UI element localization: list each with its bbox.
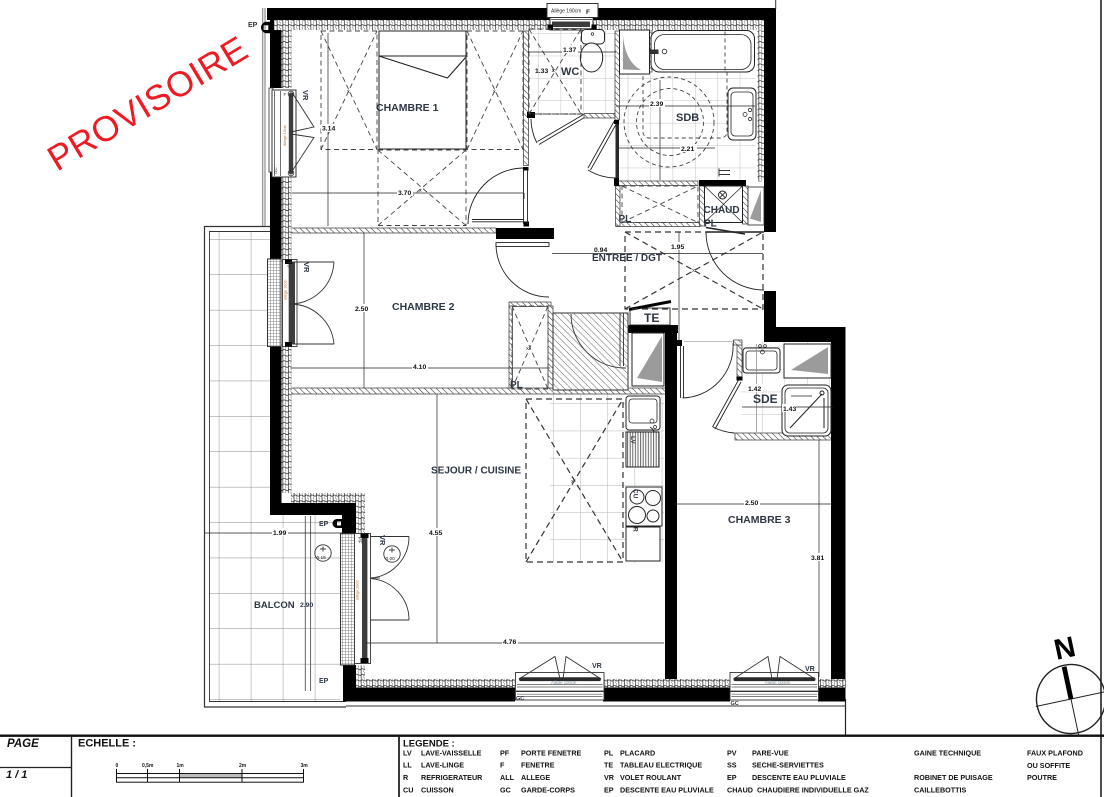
svg-text:PLACARD: PLACARD bbox=[620, 749, 655, 758]
svg-text:F: F bbox=[500, 761, 505, 770]
svg-text:GC: GC bbox=[516, 696, 524, 702]
svg-text:4.55: 4.55 bbox=[429, 530, 442, 537]
svg-text:4.76: 4.76 bbox=[503, 639, 516, 646]
svg-text:LL: LL bbox=[403, 761, 412, 770]
svg-text:x: x bbox=[692, 268, 695, 274]
svg-text:DESCENTE EAU PLUVIALE: DESCENTE EAU PLUVIALE bbox=[620, 786, 714, 795]
svg-text:PF: PF bbox=[356, 537, 362, 543]
svg-text:PARE-VUE: PARE-VUE bbox=[752, 749, 789, 758]
svg-text:VR: VR bbox=[805, 666, 815, 673]
svg-text:TE: TE bbox=[644, 311, 659, 325]
svg-text:SECHE-SERVIETTES: SECHE-SERVIETTES bbox=[752, 761, 824, 770]
svg-text:2.50: 2.50 bbox=[355, 306, 368, 313]
svg-text:EP: EP bbox=[604, 786, 614, 795]
svg-text:PL: PL bbox=[704, 219, 717, 230]
svg-text:2m: 2m bbox=[239, 763, 247, 769]
svg-text:CAILLEBOTTIS: CAILLEBOTTIS bbox=[914, 786, 967, 795]
svg-text:VR: VR bbox=[378, 535, 387, 546]
svg-text:ROBINET DE PUISAGE: ROBINET DE PUISAGE bbox=[914, 773, 993, 782]
svg-text:REFRIGERATEUR: REFRIGERATEUR bbox=[421, 773, 483, 782]
svg-text:F: F bbox=[284, 92, 287, 97]
svg-text:PF: PF bbox=[500, 749, 510, 758]
svg-text:x: x bbox=[571, 479, 574, 485]
svg-text:POUTRE: POUTRE bbox=[1027, 773, 1057, 782]
svg-text:x: x bbox=[493, 89, 496, 95]
svg-text:1m: 1m bbox=[177, 763, 185, 769]
svg-text:4.10: 4.10 bbox=[413, 364, 426, 371]
svg-text:Allège 190cm: Allège 190cm bbox=[551, 9, 581, 15]
svg-text:3.81: 3.81 bbox=[811, 555, 824, 562]
svg-text:0: 0 bbox=[116, 763, 119, 769]
svg-text:GC: GC bbox=[731, 701, 739, 707]
svg-text:PL: PL bbox=[604, 749, 614, 758]
svg-text:SS: SS bbox=[727, 761, 737, 770]
svg-text:GC: GC bbox=[273, 166, 278, 174]
svg-text:CUISSON: CUISSON bbox=[421, 786, 454, 795]
svg-text:allège 10cm: allège 10cm bbox=[284, 280, 288, 300]
svg-text:TABLEAU ELECTRIQUE: TABLEAU ELECTRIQUE bbox=[620, 761, 702, 770]
svg-text:1.43: 1.43 bbox=[783, 406, 796, 413]
svg-text:LAVE-VAISSELLE: LAVE-VAISSELLE bbox=[421, 749, 482, 758]
svg-text:x: x bbox=[347, 89, 350, 95]
svg-text:F: F bbox=[586, 9, 590, 16]
svg-text:1.37: 1.37 bbox=[563, 47, 576, 54]
svg-text:2.39: 2.39 bbox=[650, 101, 663, 108]
svg-text:CHAMBRE 3: CHAMBRE 3 bbox=[728, 514, 791, 526]
svg-text:TE: TE bbox=[604, 761, 613, 770]
svg-text:GAINE TECHNIQUE: GAINE TECHNIQUE bbox=[914, 749, 981, 758]
svg-text:VR: VR bbox=[302, 262, 311, 273]
svg-text:GARDE-CORPS: GARDE-CORPS bbox=[521, 786, 575, 795]
svg-text:PL: PL bbox=[510, 380, 523, 391]
svg-text:allège 10cm: allège 10cm bbox=[356, 580, 360, 600]
svg-text:Allège 100cm: Allège 100cm bbox=[765, 680, 791, 685]
svg-text:PV: PV bbox=[727, 749, 737, 758]
svg-text:LV: LV bbox=[403, 749, 412, 758]
svg-text:CHAUD: CHAUD bbox=[704, 205, 740, 216]
svg-text:1.33: 1.33 bbox=[535, 68, 548, 75]
svg-text:VR: VR bbox=[604, 773, 615, 782]
svg-text:1.99: 1.99 bbox=[273, 530, 286, 537]
svg-text:EP: EP bbox=[727, 773, 737, 782]
svg-text:CHAMBRE 1: CHAMBRE 1 bbox=[376, 102, 439, 114]
svg-text:3.14: 3.14 bbox=[322, 126, 335, 133]
svg-text:EP: EP bbox=[248, 22, 258, 29]
svg-text:LV: LV bbox=[629, 436, 636, 444]
svg-text:R: R bbox=[403, 773, 409, 782]
svg-text:0,5m: 0,5m bbox=[142, 763, 154, 769]
svg-text:3.70: 3.70 bbox=[398, 190, 411, 197]
svg-text:0.00: 0.00 bbox=[386, 556, 396, 562]
svg-text:Allège 10cm: Allège 10cm bbox=[283, 125, 287, 146]
svg-text:x: x bbox=[552, 68, 555, 74]
svg-text:GC: GC bbox=[500, 786, 511, 795]
svg-text:SEJOUR / CUISINE: SEJOUR / CUISINE bbox=[431, 466, 521, 477]
svg-text:PAGE: PAGE bbox=[7, 738, 39, 750]
svg-text:VR: VR bbox=[301, 90, 310, 101]
svg-text:BALCON: BALCON bbox=[254, 600, 295, 611]
svg-text:1.95: 1.95 bbox=[671, 244, 684, 251]
svg-text:3m: 3m bbox=[301, 763, 309, 769]
svg-text:VR: VR bbox=[592, 663, 602, 670]
svg-text:CU: CU bbox=[403, 786, 413, 795]
svg-text:ENTREE / DGT: ENTREE / DGT bbox=[592, 253, 662, 264]
svg-text:OU SOFFITE: OU SOFFITE bbox=[1027, 761, 1070, 770]
svg-text:FAUX PLAFOND: FAUX PLAFOND bbox=[1027, 749, 1083, 758]
svg-text:VOLET ROULANT: VOLET ROULANT bbox=[620, 773, 682, 782]
svg-text:CHAMBRE 2: CHAMBRE 2 bbox=[392, 301, 455, 313]
svg-text:EP: EP bbox=[319, 678, 329, 685]
svg-text:x: x bbox=[419, 188, 422, 194]
svg-text:ECHELLE :: ECHELLE : bbox=[78, 738, 136, 750]
svg-text:SDB: SDB bbox=[676, 112, 699, 124]
svg-text:ALL: ALL bbox=[500, 773, 515, 782]
svg-text:WC: WC bbox=[561, 66, 579, 78]
svg-text:CU: CU bbox=[632, 489, 639, 499]
svg-text:PL: PL bbox=[619, 214, 632, 225]
svg-text:2.50: 2.50 bbox=[745, 500, 758, 507]
svg-text:x: x bbox=[526, 346, 529, 352]
svg-text:2.90: 2.90 bbox=[300, 602, 313, 609]
svg-text:Allège 100cm: Allège 100cm bbox=[551, 680, 577, 685]
svg-text:CHAUD: CHAUD bbox=[727, 786, 753, 795]
svg-text:2.21: 2.21 bbox=[681, 146, 694, 153]
svg-text:EP: EP bbox=[319, 521, 329, 528]
svg-text:ALLEGE: ALLEGE bbox=[521, 773, 550, 782]
svg-text:SDE: SDE bbox=[753, 392, 778, 406]
svg-text:DESCENTE EAU PLUVIALE: DESCENTE EAU PLUVIALE bbox=[752, 773, 846, 782]
svg-text:CHAUDIERE INDIVIDUELLE GAZ: CHAUDIERE INDIVIDUELLE GAZ bbox=[757, 786, 869, 795]
svg-text:PF: PF bbox=[285, 262, 291, 268]
svg-text:FENETRE: FENETRE bbox=[521, 761, 555, 770]
svg-text:0.15: 0.15 bbox=[317, 555, 327, 561]
svg-text:LAVE-LINGE: LAVE-LINGE bbox=[421, 761, 464, 770]
svg-text:R: R bbox=[632, 527, 639, 532]
svg-text:1 / 1: 1 / 1 bbox=[6, 769, 27, 781]
svg-text:PORTE FENETRE: PORTE FENETRE bbox=[521, 749, 582, 758]
